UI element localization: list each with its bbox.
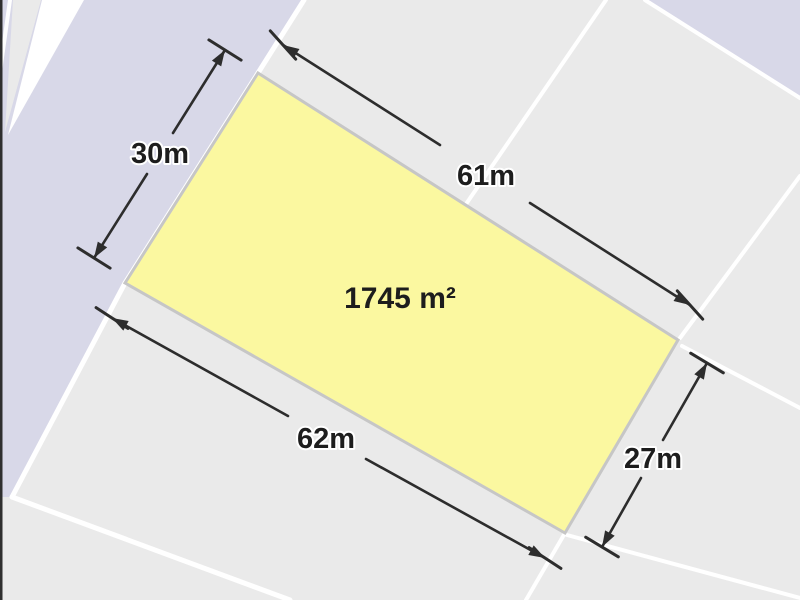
dimension-label-left: 30m: [131, 138, 189, 170]
dimension-label-top: 61m: [457, 160, 515, 192]
dimension-label-right: 27m: [624, 443, 682, 475]
cadastral-map: 30m 61m 1745 m² 62m 27m: [0, 0, 800, 600]
dimension-label-bottom: 62m: [297, 423, 355, 455]
image-left-border: [0, 0, 3, 600]
map-canvas: 30m 61m 1745 m² 62m 27m: [0, 0, 800, 600]
parcel-area-label: 1745 m²: [344, 282, 456, 315]
